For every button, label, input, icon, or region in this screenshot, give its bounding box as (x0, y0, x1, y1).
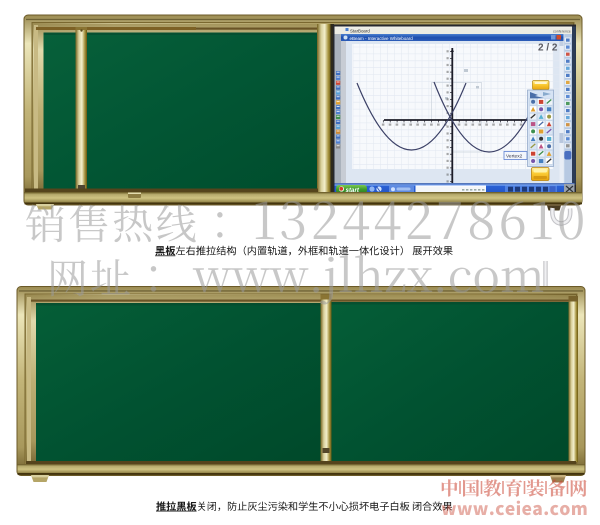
svg-text:StarBoard: StarBoard (350, 29, 370, 34)
svg-text:2 / 2: 2 / 2 (538, 43, 558, 54)
svg-text:Vertex2: Vertex2 (506, 154, 523, 160)
svg-text:conference: conference (553, 30, 571, 34)
svg-text:eBeam - Interactive Whiteboard: eBeam - Interactive Whiteboard (350, 36, 414, 41)
